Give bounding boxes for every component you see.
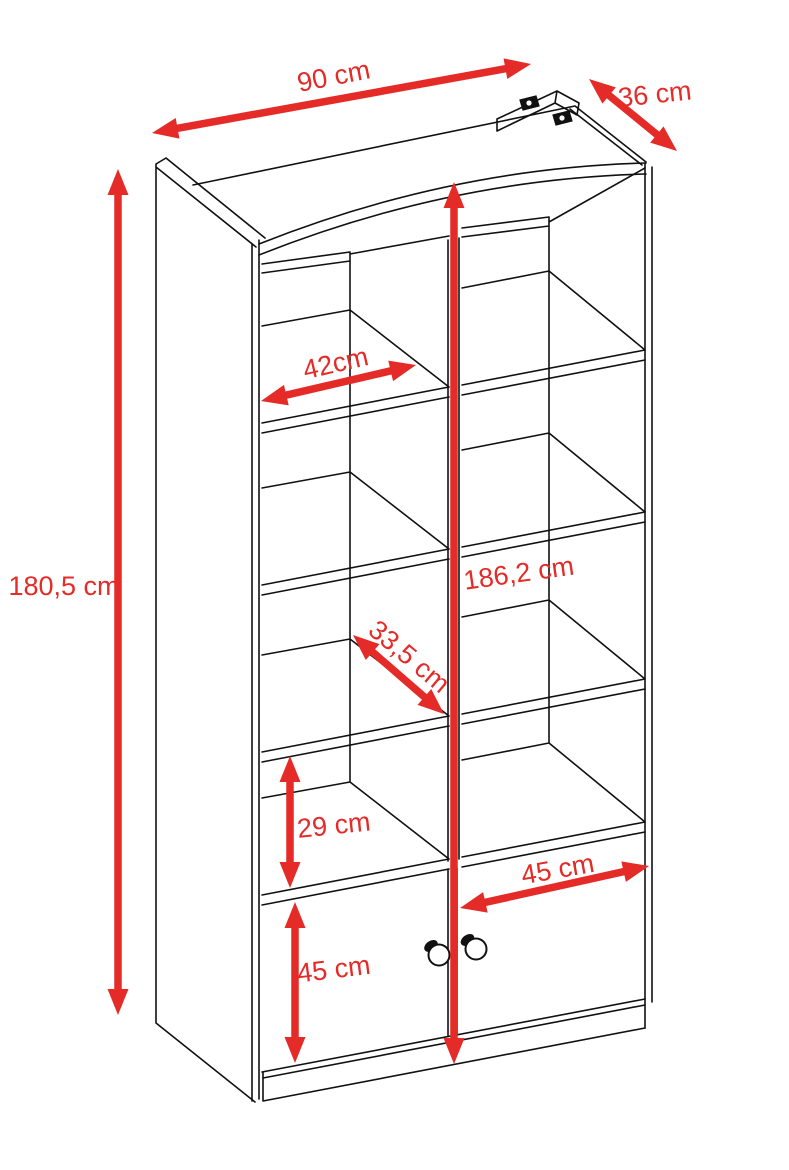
left-side-panel <box>156 158 265 1102</box>
dimension-arrowhead <box>388 361 416 381</box>
top-panel <box>193 106 646 185</box>
front-left-edge <box>252 240 259 1101</box>
door-knob-right <box>458 932 486 960</box>
mounting-bracket-left-icon <box>520 96 539 110</box>
dimension-label-depth-top: 36 cm <box>617 75 693 113</box>
dimension-height-left: 180,5 cm <box>8 169 128 1015</box>
dimension-arrowhead <box>504 58 531 79</box>
front-right-edge <box>645 163 652 1028</box>
diagram-root: 90 cm36 cm180,5 cm186,2 cm42cm33,5 cm29 … <box>0 0 789 1170</box>
dimension-arrowhead <box>460 892 488 912</box>
mounting-bracket-right-icon <box>553 111 572 125</box>
dimension-arrowhead <box>280 756 301 782</box>
dimension-arrowhead <box>280 862 301 888</box>
dimension-arrowhead <box>444 1038 465 1064</box>
dimension-arrowhead <box>285 1037 306 1063</box>
dimension-shelf-width: 42cm <box>261 341 416 405</box>
dimension-arrowhead <box>108 989 129 1015</box>
dimension-label-compartment-height: 29 cm <box>296 806 372 844</box>
dimension-shelf-depth: 33,5 cm <box>353 614 456 714</box>
dimension-compartment-height: 29 cm <box>280 756 372 888</box>
cabinet-drawing <box>156 91 652 1102</box>
dimension-arrowhead <box>261 385 289 405</box>
dimension-depth-top: 36 cm <box>589 75 693 151</box>
dimension-label-height-left: 180,5 cm <box>8 571 119 601</box>
door-knob-left <box>422 938 450 966</box>
dimension-door-width: 45 cm <box>460 848 649 913</box>
dimension-width-top: 90 cm <box>152 54 531 138</box>
dimension-arrowhead <box>152 118 179 139</box>
dimension-label-door-height: 45 cm <box>295 950 372 989</box>
dimension-height-center: 186,2 cm <box>444 182 576 1064</box>
dimension-label-height-center: 186,2 cm <box>462 551 576 596</box>
dimension-door-height: 45 cm <box>285 902 373 1063</box>
bookcase-dimension-diagram: 90 cm36 cm180,5 cm186,2 cm42cm33,5 cm29 … <box>0 0 789 1170</box>
dimension-arrowhead <box>108 169 129 195</box>
dimension-arrowhead <box>285 902 306 928</box>
